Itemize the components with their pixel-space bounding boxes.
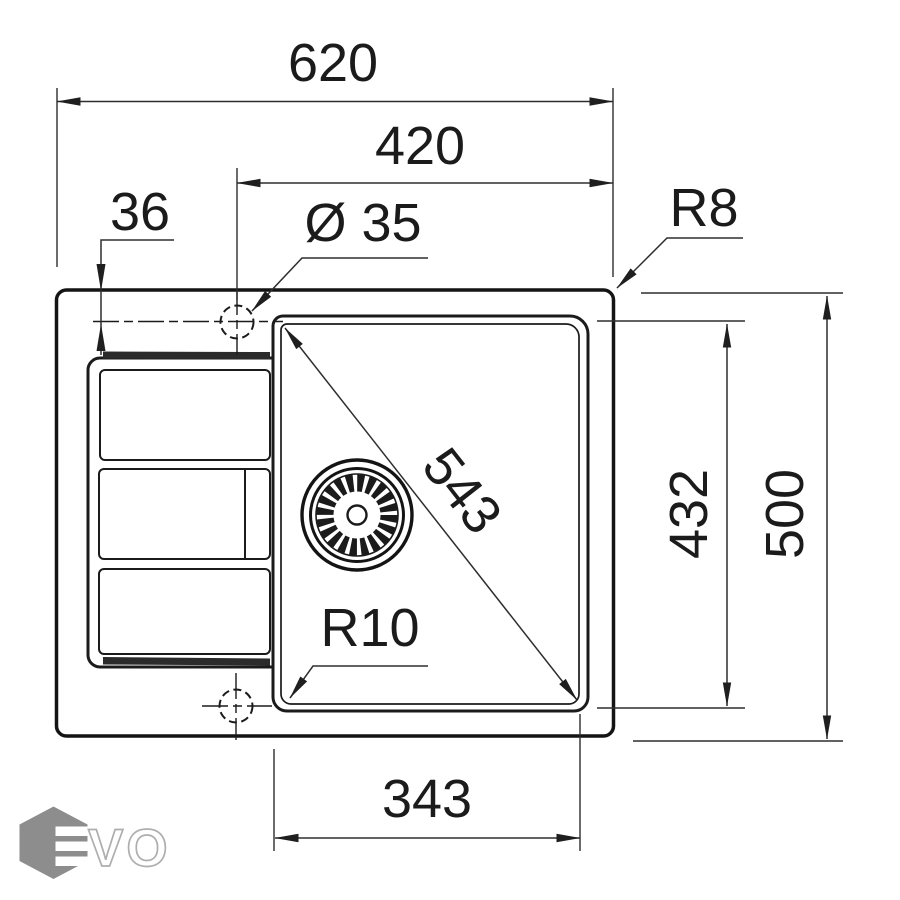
- sink-technical-drawing: 620 420 36 Ø 35 R8 543 R10 432: [0, 0, 900, 900]
- tap-hole-bottom: [202, 673, 272, 740]
- label-bowl-radius: R10: [290, 598, 428, 698]
- dim-36-label: 36: [110, 182, 170, 242]
- label-tap-diameter: Ø 35: [252, 193, 428, 311]
- logo-e-gap-3: [56, 857, 91, 867]
- dim-343-label: 343: [382, 769, 472, 829]
- dim-36-arrow-down: [97, 264, 106, 291]
- dim-inner-width: 420: [237, 116, 613, 300]
- drainboard-rib-1: [100, 370, 270, 460]
- outer-radius-label: R8: [669, 178, 738, 238]
- drainboard: [88, 352, 272, 668]
- logo-vo-text: VO: [88, 819, 171, 878]
- label-outer-radius: R8: [617, 178, 743, 288]
- dim-tap-offset: 36: [97, 182, 175, 355]
- dim-432-label: 432: [659, 469, 719, 559]
- dim-420-label: 420: [375, 116, 465, 176]
- logo-e-gap-1: [56, 827, 91, 837]
- tap-diameter-leader: [252, 258, 428, 311]
- dim-543-label: 543: [411, 437, 514, 545]
- bowl-radius-leader: [290, 666, 428, 698]
- bowl-radius-label: R10: [320, 598, 419, 658]
- dim-36-leader: [101, 240, 174, 355]
- drawing-svg: 620 420 36 Ø 35 R8 543 R10 432: [0, 0, 900, 900]
- drainboard-rib-3: [99, 569, 270, 654]
- tap-hole-top: [93, 289, 283, 355]
- dim-500-label: 500: [755, 469, 815, 559]
- outer-radius-leader: [617, 238, 743, 288]
- dim-bowl-depth: 432: [597, 321, 745, 708]
- logo-e-gap-2: [56, 842, 91, 852]
- drainboard-top-shade: [103, 352, 270, 360]
- dim-620-label: 620: [288, 33, 378, 93]
- evo-logo: VO: [20, 807, 171, 880]
- dim-36-arrow-up: [97, 324, 106, 351]
- drain-strainer: [302, 460, 412, 570]
- tap-diameter-label: Ø 35: [304, 193, 421, 253]
- drainboard-bottom-shade: [103, 657, 270, 666]
- strainer-center-hole: [348, 506, 367, 525]
